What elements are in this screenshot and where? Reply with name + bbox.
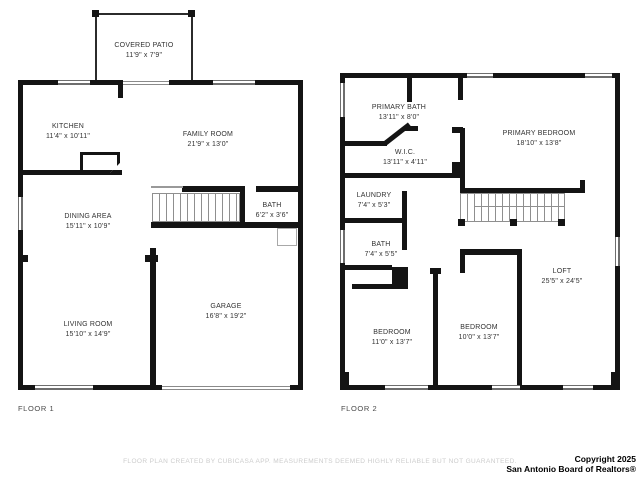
wall — [345, 173, 463, 178]
room-label-covered-patio: COVERED PATIO 11'9" x 7'9" — [84, 41, 204, 60]
room-label-bath-2: BATH 7'4" x 5'5" — [331, 240, 431, 259]
room-label-wic: W.I.C. 13'11" x 4'11" — [345, 148, 465, 167]
room-name: BATH — [331, 240, 431, 250]
room-label-primary-bedroom: PRIMARY BEDROOM 18'10" x 13'8" — [469, 129, 609, 148]
window — [492, 385, 520, 390]
wall — [18, 385, 35, 390]
room-label-family-room: FAMILY ROOM 21'9" x 13'0" — [148, 130, 268, 149]
room-label-bedroom-mid: BEDROOM 10'0" x 13'7" — [419, 323, 539, 342]
wall — [430, 268, 441, 274]
room-label-loft: LOFT 25'5" x 24'5" — [502, 267, 622, 286]
room-label-living-room: LIVING ROOM 15'10" x 14'9" — [28, 320, 148, 339]
room-dims: 15'11" x 10'9" — [28, 222, 148, 232]
room-dims: 11'4" x 10'11" — [18, 132, 118, 142]
room-dims: 11'9" x 7'9" — [84, 51, 204, 61]
stair-newel — [558, 219, 565, 226]
room-name: LIVING ROOM — [28, 320, 148, 330]
wall — [340, 385, 385, 390]
floor-plan-canvas: COVERED PATIO 11'9" x 7'9" KITCHEN 11'4"… — [0, 0, 640, 480]
room-label-garage: GARAGE 16'8" x 19'2" — [166, 302, 286, 321]
wall — [182, 186, 244, 192]
window — [615, 237, 620, 266]
wall — [520, 385, 563, 390]
copyright-line2: San Antonio Board of Realtors® — [506, 464, 636, 474]
wall — [345, 141, 387, 146]
stair-landing-line — [475, 206, 565, 207]
floor1-title: FLOOR 1 — [18, 404, 54, 413]
room-dims: 13'11" x 4'11" — [345, 158, 465, 168]
wall — [345, 218, 407, 223]
window — [585, 73, 612, 78]
wall — [18, 80, 58, 85]
room-dims: 16'8" x 19'2" — [166, 312, 286, 322]
wall — [352, 284, 408, 289]
wall — [580, 180, 585, 189]
garage-door-opening — [162, 386, 290, 390]
room-dims: 7'4" x 5'5" — [331, 250, 431, 260]
room-name: PRIMARY BEDROOM — [469, 129, 609, 139]
window — [213, 80, 233, 85]
room-dims: 6'2" x 3'6" — [242, 211, 302, 221]
window — [467, 73, 493, 78]
stair-railing — [151, 186, 183, 188]
wall — [407, 73, 412, 102]
patio-post — [188, 10, 195, 17]
room-dims: 7'4" x 5'3" — [324, 201, 424, 211]
room-dims: 21'9" x 13'0" — [148, 140, 268, 150]
floor2-title: FLOOR 2 — [341, 404, 377, 413]
stair-newel — [510, 219, 517, 226]
room-dims: 25'5" x 24'5" — [502, 277, 622, 287]
wall — [458, 73, 463, 100]
room-label-dining-area: DINING AREA 15'11" x 10'9" — [28, 212, 148, 231]
room-label-laundry: LAUNDRY 7'4" x 5'3" — [324, 191, 424, 210]
window — [35, 385, 93, 390]
patio-post — [92, 10, 99, 17]
window — [563, 385, 593, 390]
wall — [290, 385, 303, 390]
room-label-kitchen: KITCHEN 11'4" x 10'11" — [18, 122, 118, 141]
wall — [460, 249, 522, 255]
window — [385, 385, 428, 390]
utility-closet-outline — [277, 228, 297, 246]
wall — [340, 73, 345, 83]
stair-newel — [458, 219, 465, 226]
room-name: FAMILY ROOM — [148, 130, 268, 140]
room-dims: 13'11" x 8'0" — [339, 113, 459, 123]
room-name: KITCHEN — [18, 122, 118, 132]
room-name: W.I.C. — [345, 148, 465, 158]
stairs-floor1 — [152, 193, 240, 222]
copyright-line1: Copyright 2025 — [506, 454, 636, 464]
room-name: LAUNDRY — [324, 191, 424, 201]
window — [58, 80, 90, 85]
patio-door-opening — [123, 81, 169, 85]
wall — [493, 73, 585, 78]
wall — [169, 80, 213, 85]
wall — [593, 385, 620, 390]
wall — [18, 255, 28, 262]
room-name: BATH — [242, 201, 302, 211]
wall — [18, 230, 23, 390]
room-dims: 18'10" x 13'8" — [469, 139, 609, 149]
wall — [345, 265, 392, 270]
room-name: PRIMARY BATH — [339, 103, 459, 113]
room-name: LOFT — [502, 267, 622, 277]
window — [18, 197, 23, 230]
copyright-text: Copyright 2025 San Antonio Board of Real… — [506, 454, 636, 474]
wall — [150, 248, 156, 390]
room-dims: 15'10" x 14'9" — [28, 330, 148, 340]
room-dims: 10'0" x 13'7" — [419, 333, 539, 343]
wall — [298, 80, 303, 390]
wall — [460, 249, 465, 273]
room-label-bath-1: BATH 6'2" x 3'6" — [242, 201, 302, 220]
room-name: BEDROOM — [419, 323, 539, 333]
wall — [340, 73, 467, 78]
room-label-primary-bath: PRIMARY BATH 13'11" x 8'0" — [339, 103, 459, 122]
wall — [340, 263, 345, 390]
wall — [256, 186, 303, 192]
room-name: GARAGE — [166, 302, 286, 312]
room-name: DINING AREA — [28, 212, 148, 222]
room-name: COVERED PATIO — [84, 41, 204, 51]
wall — [255, 80, 303, 85]
wall — [615, 73, 620, 237]
window — [233, 80, 255, 85]
wall — [405, 126, 418, 131]
stairs-floor2 — [460, 193, 565, 222]
